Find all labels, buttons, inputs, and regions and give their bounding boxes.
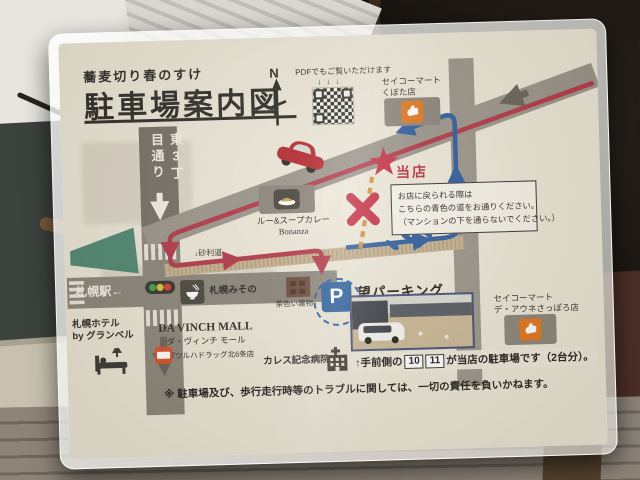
compass-arrow-icon xyxy=(263,77,290,128)
misono-label: 札幌みその xyxy=(209,284,257,298)
hotel-label: 札幌ホテル by グランベル xyxy=(72,318,134,344)
seicomart-kubota-label: セイコーマート くぼた店 xyxy=(381,75,441,98)
brown-building-label: 茶色い建物 xyxy=(276,298,314,310)
notice-box: お店に戻られる際は こちらの青色の道をお通りください。 （マンションの下を通らな… xyxy=(390,180,537,235)
white-van xyxy=(358,322,404,341)
curry-icon xyxy=(273,189,300,210)
qr-code xyxy=(312,86,355,125)
tsuruha-logo-icon xyxy=(155,347,172,364)
hospital-icon xyxy=(325,346,350,373)
pdf-arrows: ↓↓↓ xyxy=(317,77,344,87)
seicomart-deaune-building xyxy=(504,314,557,345)
parking-sign-icon: P xyxy=(321,282,352,313)
davinch-mall-kana: ダ・ヴィンチ モール xyxy=(166,333,245,347)
parking-map-sheet: 蕎麦切り春のすけ 駐車場案内図 N PDFでもご覧いただけます ↓↓↓ 東3丁目… xyxy=(58,29,607,460)
seicomart-logo-icon xyxy=(519,318,542,341)
ramen-icon xyxy=(180,280,205,305)
parking-photo xyxy=(349,292,475,351)
seicomart-kubota-building xyxy=(384,97,441,127)
our-store-label: 当店 xyxy=(396,161,429,182)
seicomart-logo-icon xyxy=(401,100,424,123)
road-label-higashi3chome: 東3丁目通り xyxy=(147,132,187,197)
park-area xyxy=(69,227,138,275)
traffic-light-icon xyxy=(145,280,175,294)
bed-icon xyxy=(93,347,130,376)
bonanza-label: ルー&スープカレー Bonanza xyxy=(251,214,336,238)
brown-building-icon xyxy=(286,277,311,298)
spot-number-11: 11 xyxy=(425,353,444,368)
seicomart-deaune-label: セイコーマート デ・アウネさっぽろ店 xyxy=(493,291,579,315)
gravel-road-label: ↓砂利道 xyxy=(194,247,222,259)
hospital-label: カレス記念病院 xyxy=(263,354,330,368)
photo-frame: 蕎麦切り春のすけ 駐車場案内図 N PDFでもご覧いただけます ↓↓↓ 東3丁目… xyxy=(0,0,640,480)
laminated-sleeve: 蕎麦切り春のすけ 駐車場案内図 N PDFでもご覧いただけます ↓↓↓ 東3丁目… xyxy=(48,18,618,469)
notice-line3: （マンションの下を通らないでください。） xyxy=(398,212,530,229)
x-mark-icon xyxy=(351,197,376,222)
road-label-sapporo-station: 札幌駅← xyxy=(75,282,123,300)
bonanza-building xyxy=(258,184,315,214)
tsuruha-label: ツルハドラッグ北6条店 xyxy=(175,348,254,361)
spot-number-10: 10 xyxy=(404,354,424,369)
